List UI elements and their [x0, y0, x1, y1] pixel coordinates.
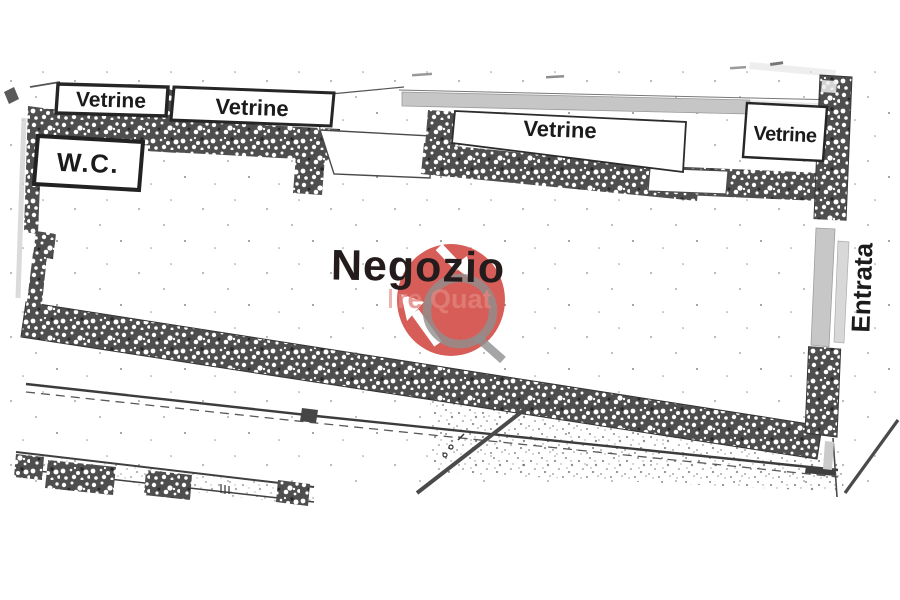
opening-recess [320, 130, 432, 178]
line-junction-node [300, 408, 318, 423]
opening-doorway [648, 168, 728, 194]
wall-pillar-1 [293, 155, 325, 195]
label-entrance: Entrata [845, 242, 878, 333]
floorplan-drawing: re Quat Vetrine Vetrine Vetrine Vetrine … [0, 0, 900, 600]
label-vetrine-1: Vetrine [76, 88, 147, 113]
label-wc: W.C. [56, 147, 119, 179]
label-vetrine-3: Vetrine [523, 116, 597, 144]
label-vetrine-2: Vetrine [215, 94, 289, 122]
label-vetrine-4: Vetrine [753, 123, 817, 148]
floorplan-scan: re Quat Vetrine Vetrine Vetrine Vetrine … [0, 0, 900, 600]
label-shop: Negozio [331, 241, 506, 292]
